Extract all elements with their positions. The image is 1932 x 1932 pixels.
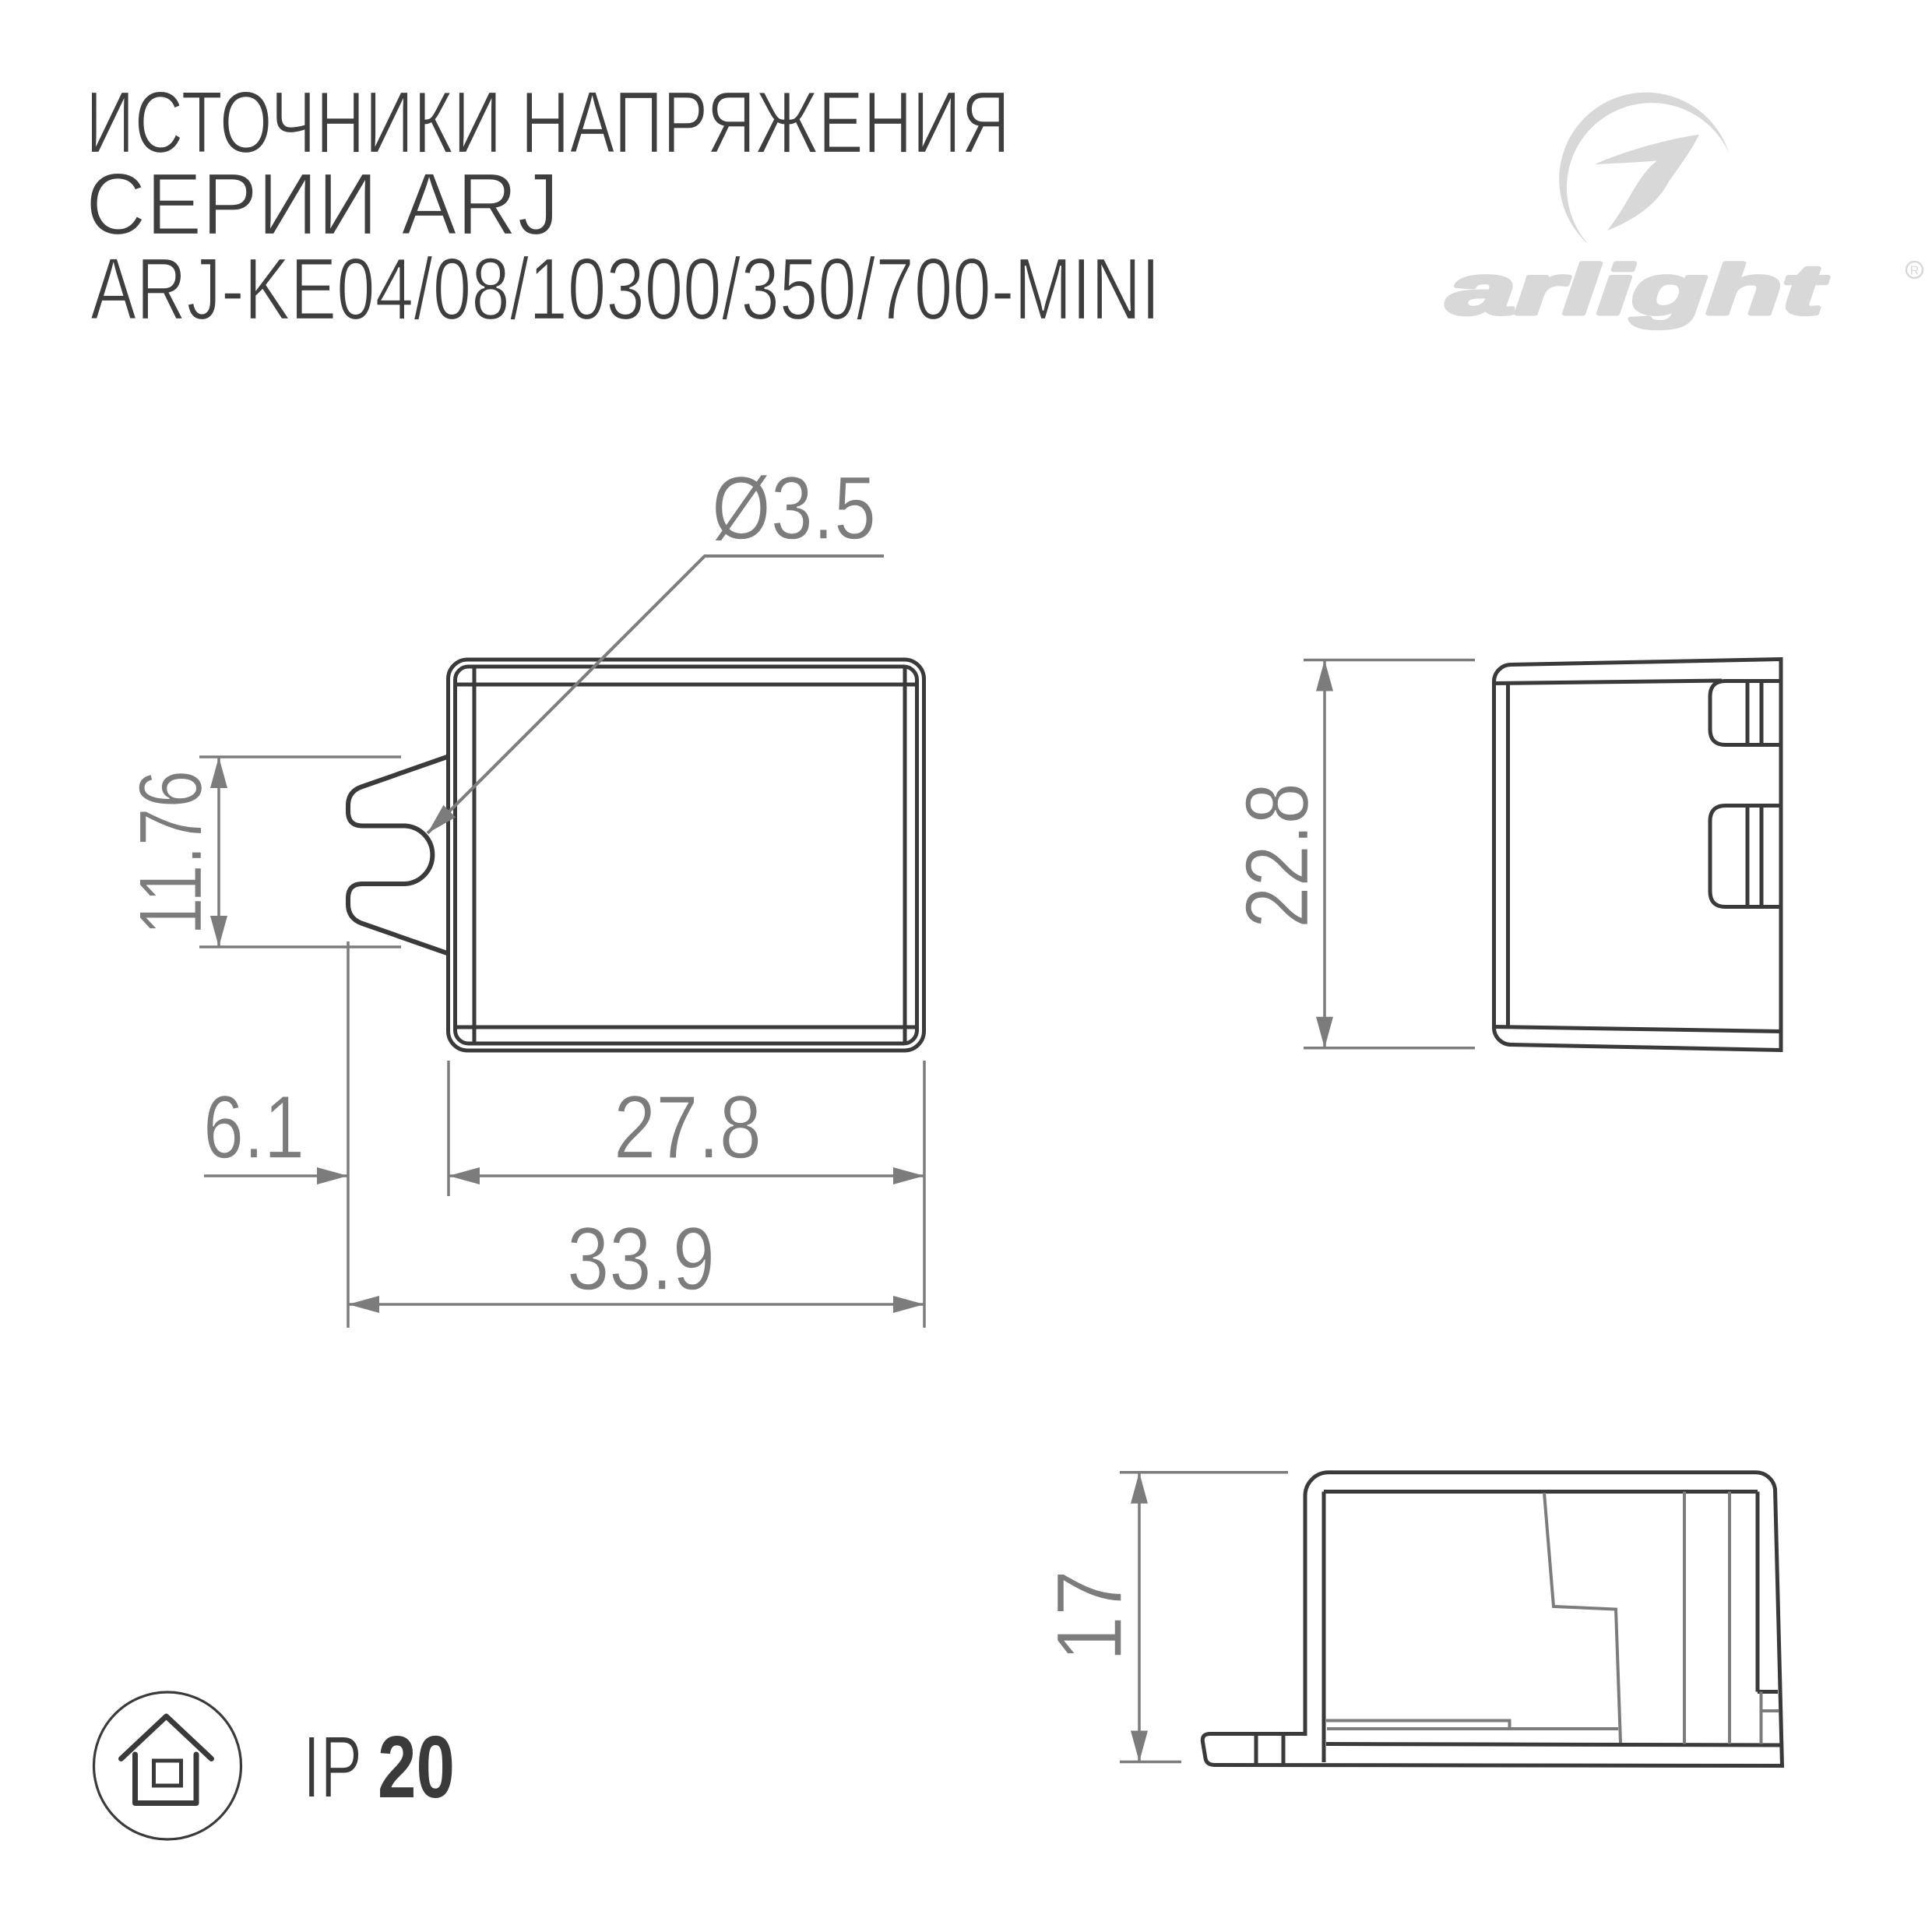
svg-text:ARJ-KE04/08/10300/350/700-MINI: ARJ-KE04/08/10300/350/700-MINI bbox=[90, 240, 1160, 338]
svg-text:22.8: 22.8 bbox=[1227, 783, 1327, 928]
svg-text:27.8: 27.8 bbox=[614, 1078, 762, 1177]
svg-text:33.9: 33.9 bbox=[567, 1209, 715, 1309]
svg-text:Ø3.5: Ø3.5 bbox=[712, 459, 876, 558]
svg-text:arlight: arlight bbox=[1447, 252, 1828, 329]
svg-text:11.76: 11.76 bbox=[121, 770, 221, 935]
svg-text:СЕРИИ ARJ: СЕРИИ ARJ bbox=[86, 155, 559, 253]
svg-text:20: 20 bbox=[378, 1718, 455, 1816]
svg-text:IP: IP bbox=[303, 1718, 362, 1816]
svg-text:R: R bbox=[1910, 265, 1920, 278]
svg-text:6.1: 6.1 bbox=[203, 1078, 304, 1177]
svg-text:17: 17 bbox=[1037, 1570, 1142, 1662]
